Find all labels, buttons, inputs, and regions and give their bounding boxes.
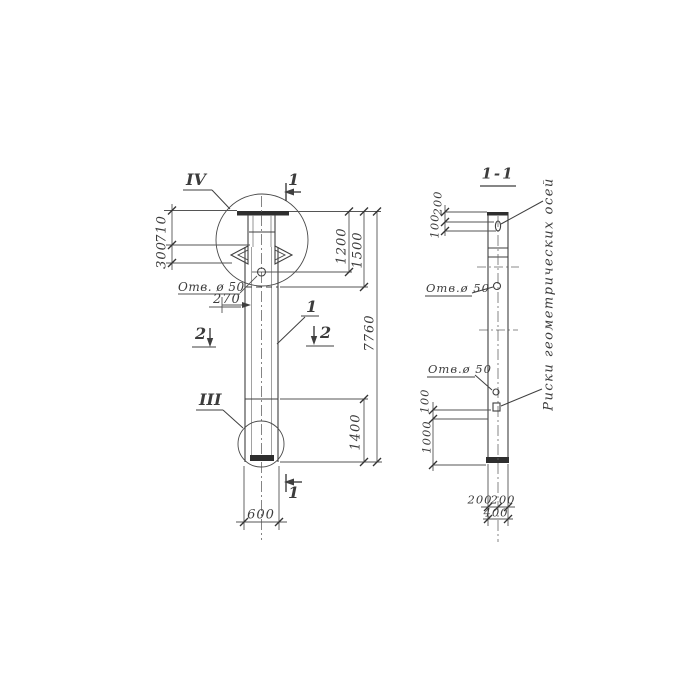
dim-400-bottom-label: 400	[484, 507, 509, 519]
dim-270-label: 270	[213, 293, 241, 306]
detail-iii-label: III	[199, 392, 221, 408]
section-1-bottom-label: 1	[288, 485, 300, 501]
main-column-elevation	[231, 196, 292, 540]
engineering-drawing-sheet: IV 1 710 300 Отв. ø 50 270 2 2 1 III 120…	[0, 0, 700, 700]
section-2-right-label: 2	[320, 325, 332, 341]
dim-200-bottom-left-label: 200	[468, 494, 493, 506]
dim-200-bottom-right-label: 200	[491, 494, 516, 506]
detail-iv-label: IV	[186, 172, 206, 188]
section-hole-upper-label: Отв.ø 50	[426, 283, 490, 295]
dim-1000-left-label: 1000	[421, 420, 433, 453]
dim-600-label: 600	[247, 509, 275, 522]
dim-100-top-label: 100	[429, 214, 441, 239]
drawing-linework	[0, 0, 700, 700]
axes-note-label: Риски геометрических осей	[543, 177, 556, 411]
dim-1500-label: 1500	[352, 231, 365, 268]
dim-1200-label: 1200	[336, 227, 349, 264]
column-bottom-tip	[250, 455, 274, 461]
dim-300-label: 300	[156, 241, 169, 269]
dim-100-left-label: 100	[419, 389, 431, 414]
section-bottom-tip	[486, 457, 509, 463]
dim-1400-label: 1400	[350, 413, 363, 450]
section-view-title: 1-1	[481, 167, 514, 182]
section-marks	[192, 183, 334, 492]
section-2-left-label: 2	[195, 326, 207, 342]
section-hole-upper	[494, 283, 501, 290]
top-plate	[237, 211, 289, 216]
dim-270-arrowhead	[242, 302, 251, 308]
section-hole-lower-label: Отв.ø 50	[428, 364, 492, 376]
section-1-top-label: 1	[288, 172, 300, 188]
dim-200-top-label: 200	[432, 191, 444, 216]
axis-mark-lower	[493, 403, 500, 411]
dim-710-label: 710	[156, 215, 169, 243]
part-leader-1-label: 1	[306, 299, 318, 315]
dim-7760-label: 7760	[364, 314, 377, 351]
